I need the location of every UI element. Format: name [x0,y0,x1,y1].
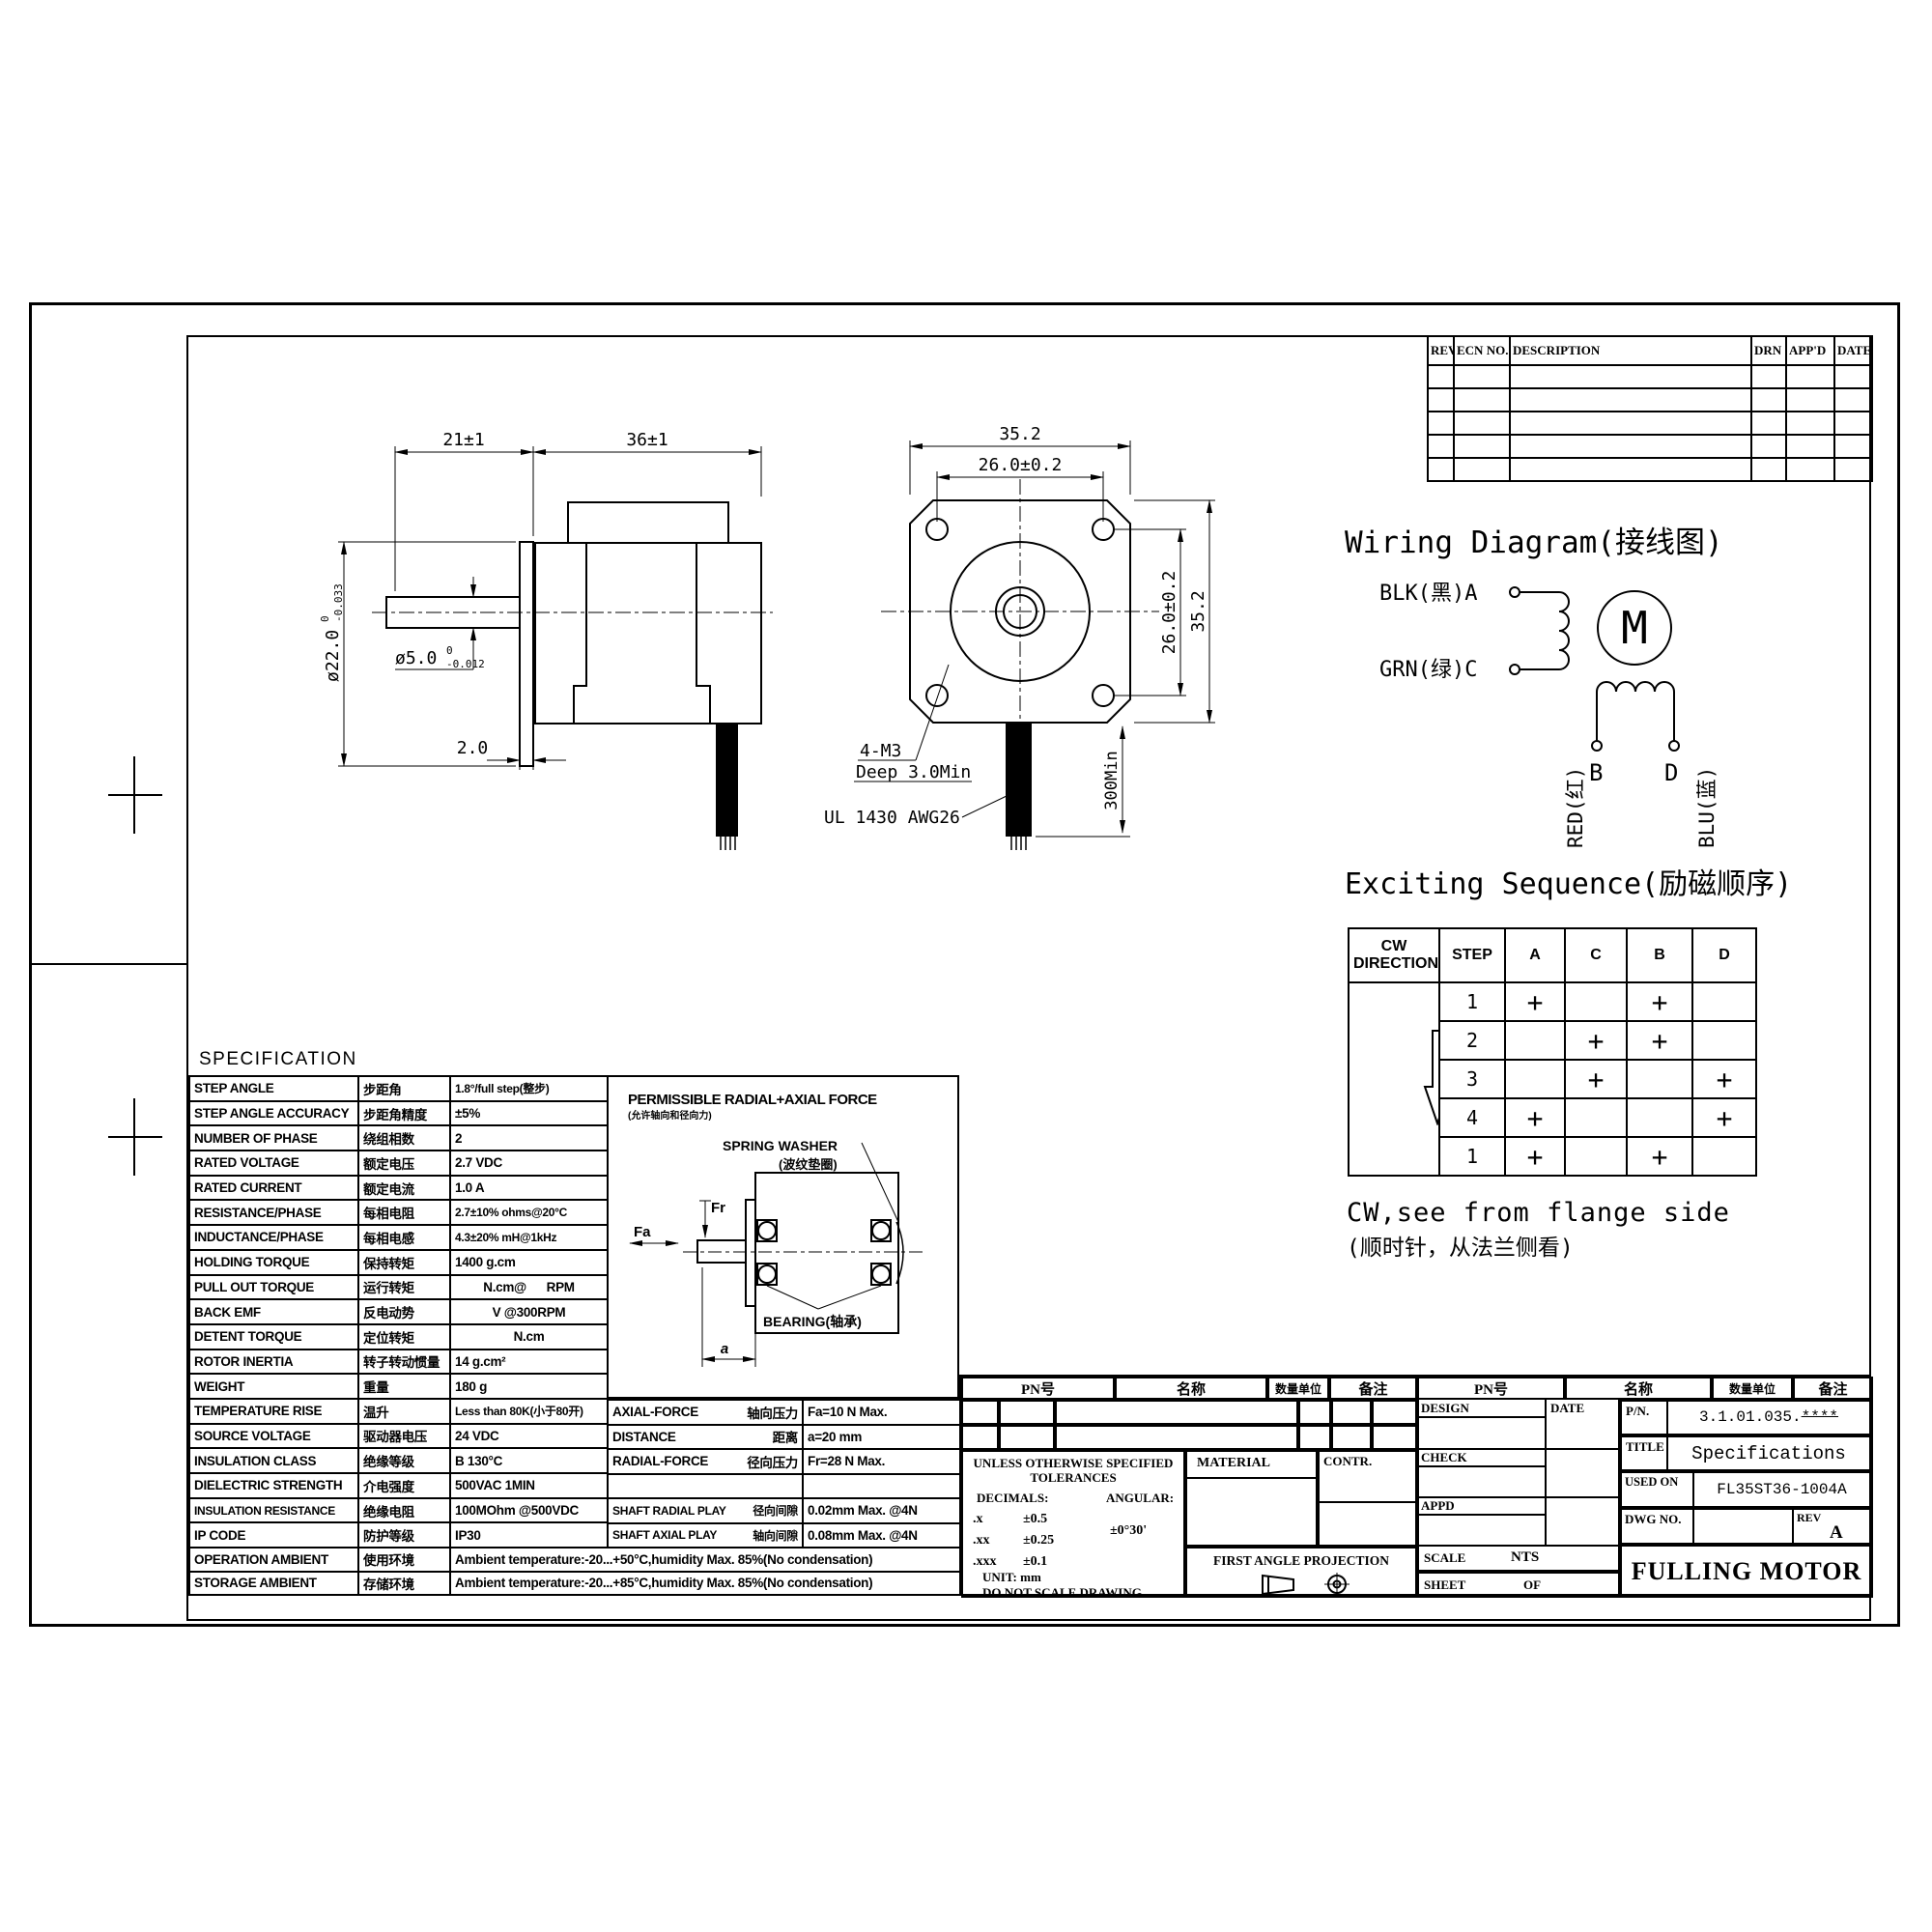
drn-header: DRN [1751,336,1786,365]
dim-shaft-tol-upper: 0 [446,644,453,657]
appd-label: APPD [1421,1498,1455,1514]
used-on-label: USED ON [1625,1475,1678,1490]
title-block: PN号 名称 数量单位 备注 PN号 名称 数量单位 备注 UNLESS OTH… [959,1375,1871,1596]
projection-label: FIRST ANGLE PROJECTION [1187,1553,1415,1569]
pn-stars: **** [1802,1408,1838,1426]
spec-row: AXIAL-FORCE轴向压力Fa=10 N Max. [608,1400,960,1425]
terminal-d-dot [1669,741,1679,751]
spec-row [608,1474,960,1499]
exciting-sequence-table: CW DIRECTION STEP A C B D 1++ 2++ 3++ 4+… [1348,927,1757,1177]
contr-box: CONTR. [1318,1450,1417,1547]
sheet-label: SHEET [1424,1577,1465,1593]
dim-boss-thickness: 2.0 [457,738,489,758]
angular-value: ±0°30' [1110,1523,1147,1539]
ecn-header: ECN NO. [1454,336,1510,365]
sequence-title: Exciting Sequence(励磁顺序) [1345,867,1792,901]
approval-area: DESIGN DATE CHECK APPD [1417,1400,1620,1545]
force-title-cn: (允许轴向和径向力) [628,1109,712,1122]
force-spec-table: AXIAL-FORCE轴向压力Fa=10 N Max. DISTANCE距离a=… [607,1399,961,1548]
coil-a-c [1520,592,1569,669]
sequence-row: 1++ [1349,982,1756,1021]
first-angle-projection-icon [1255,1572,1361,1598]
spec-row: INSULATION RESISTANCE绝缘电阻100MOhm @500VDC [189,1498,608,1523]
spec-row: NUMBER OF PHASE绕组相数2 [189,1125,608,1151]
decimals-label: DECIMALS: [977,1491,1048,1506]
design-label: DESIGN [1421,1401,1469,1416]
spec-row: STEP ANGLE步距角1.8°/full step(整步) [189,1076,608,1101]
qty-col-header: 数量单位 [1267,1377,1329,1400]
check-label: CHECK [1421,1450,1467,1465]
title-row: TITLE Specifications [1620,1435,1873,1471]
specification-title: SPECIFICATION [199,1049,357,1070]
unit-note: UNIT: mm [982,1570,1041,1585]
tolerances-line1: UNLESS OTHERWISE SPECIFIED [963,1456,1183,1471]
pn-row: P/N. 3.1.01.035.**** [1620,1400,1873,1435]
appd-header: APP'D [1786,336,1834,365]
dwg-no-row: DWG NO. REV A [1620,1508,1873,1545]
name-col-header: 名称 [1565,1377,1712,1400]
spec-row: SHAFT RADIAL PLAY径向间隙0.02mm Max. @4N [608,1498,960,1523]
side-view-dimension-texts: 21±1 36±1 ø22.0 0 -0.033 ø5.0 0 -0.012 2… [319,430,668,758]
spec-row: INDUCTANCE/PHASE每相电感4.3±20% mH@1kHz [189,1225,608,1250]
spring-washer-label: SPRING WASHER [723,1138,838,1153]
lead-a-label: BLK(黑)A [1379,582,1477,606]
spec-row: DETENT TORQUE定位转矩N.cm [189,1324,608,1350]
pn-label: P/N. [1626,1404,1649,1419]
contr-label: CONTR. [1323,1454,1372,1469]
specification-table: STEP ANGLE步距角1.8°/full step(整步) STEP ANG… [188,1075,609,1548]
projection-box: FIRST ANGLE PROJECTION [1185,1547,1417,1598]
spec-row: INSULATION CLASS绝缘等级B 130°C [189,1448,608,1473]
spring-washer-label-cn: (波纹垫圈) [779,1157,838,1172]
fa-label: Fa [634,1224,651,1240]
spec-row: RATED CURRENT额定电流1.0 A [189,1176,608,1201]
revision-empty-row [1428,365,1872,388]
lead-d-label: BLU(蓝) [1695,767,1719,848]
lead-b-label: RED(红) [1564,767,1587,848]
pn-col-header: PN号 [1417,1377,1565,1400]
bearing-label: BEARING(轴承) [763,1314,862,1329]
spec-row: SHAFT AXIAL PLAY轴向间隙0.08mm Max. @4N [608,1523,960,1548]
dim-boss-tol-lower: -0.033 [332,583,345,622]
fr-label: Fr [711,1200,725,1216]
spec-row: RESISTANCE/PHASE每相电阻2.7±10% ohms@20°C [189,1200,608,1225]
material-box: MATERIAL [1185,1450,1318,1547]
direction-header: CW DIRECTION [1349,928,1439,982]
angular-label: ANGULAR: [1106,1491,1174,1506]
spec-row: IP CODE防护等级IP30 [189,1522,608,1548]
motor-side-view [372,502,773,850]
sheet-of-label: OF [1523,1577,1541,1593]
cw-note-en: CW,see from flange side [1347,1198,1730,1228]
tol-x-value: ±0.5 [1023,1512,1047,1527]
spec-row: TEMPERATURE RISE温升Less than 80K(小于80开) [189,1399,608,1424]
spec-row: DISTANCE距离a=20 mm [608,1425,960,1450]
used-on-value: FL35ST36-1004A [1692,1481,1871,1498]
used-on-row: USED ON FL35ST36-1004A [1620,1471,1873,1508]
spec-row: BACK EMF反电动势V @300RPM [189,1299,608,1324]
spec-row: STORAGE AMBIENT存储环境Ambient temperature:-… [189,1572,960,1596]
revision-empty-row [1428,412,1872,435]
revision-empty-row [1428,388,1872,412]
title-label: TITLE [1626,1439,1664,1455]
spec-row: RADIAL-FORCE径向压力Fr=28 N Max. [608,1449,960,1474]
qty-col-header: 数量单位 [1712,1377,1793,1400]
terminal-d-label: D [1664,759,1678,786]
dim-hole-pitch-h: 26.0±0.2 [979,455,1063,475]
force-title: PERMISSIBLE RADIAL+AXIAL FORCE [628,1092,877,1108]
dim-boss-tol-upper: 0 [319,615,331,622]
terminal-b-label: B [1589,759,1603,786]
name-col-header: 名称 [1115,1377,1267,1400]
date-header: DATE [1834,336,1872,365]
tolerances-box: UNLESS OTHERWISE SPECIFIED TOLERANCES DE… [961,1450,1185,1598]
date-label: DATE [1550,1401,1584,1416]
dim-hole-pitch-v: 26.0±0.2 [1159,571,1179,655]
wiring-diagram: Wiring Diagram(接线图) BLK(黑)A GRN(绿)C M B … [1345,526,1792,901]
tolerances-line2: TOLERANCES [963,1470,1183,1486]
dim-cable-length: 300Min [1102,751,1122,810]
spec-row: STEP ANGLE ACCURACY步距角精度±5% [189,1101,608,1126]
dim-width: 35.2 [999,424,1040,444]
cw-note-cn: (顺时针，从法兰侧看) [1347,1229,1574,1262]
rev-header: REV [1428,336,1454,365]
rev-label: REV [1797,1511,1821,1525]
coil-b-d [1597,682,1674,741]
spec-row: OPERATION AMBIENT使用环境Ambient temperature… [189,1548,960,1572]
revision-header-row: REV ECN NO. DESCRIPTION DRN APP'D DATE [1428,336,1872,365]
remark-col-header: 备注 [1793,1377,1873,1400]
dim-shaft-dia: ø5.0 [395,648,437,668]
scale-label: SCALE [1424,1550,1465,1566]
specification-ambient-table: OPERATION AMBIENT使用环境Ambient temperature… [188,1547,961,1596]
side-view-dimension-lines [338,446,761,770]
note-cable: UL 1430 AWG26 [824,808,960,828]
border-fold-marks [108,756,162,1176]
pn-col-header: PN号 [961,1377,1115,1400]
a-dim-label: a [721,1341,728,1357]
scale-value: NTS [1511,1549,1539,1566]
spec-row: PULL OUT TORQUE运行转矩N.cm@ RPM [189,1275,608,1300]
dim-height: 35.2 [1188,590,1208,632]
spec-row: SOURCE VOLTAGE驱动器电压24 VDC [189,1424,608,1449]
lead-c-label: GRN(绿)C [1379,658,1477,682]
cw-direction-arrow-icon [1423,1029,1439,1125]
material-label: MATERIAL [1197,1456,1270,1471]
dwg-no-label: DWG NO. [1625,1512,1682,1527]
spec-row: WEIGHT重量180 g [189,1374,608,1399]
dim-boss-dia: ø22.0 [323,630,343,682]
spec-row: DIELECTRIC STRENGTH介电强度500VAC 1MIN [189,1473,608,1498]
note-mounting-holes-line1: 4-M3 [860,741,901,761]
revision-empty-row [1428,458,1872,481]
spec-row: ROTOR INERTIA转子转动惯量14 g.cm² [189,1350,608,1375]
remark-col-header: 备注 [1329,1377,1417,1400]
motor-symbol: M [1621,602,1648,654]
company-name: FULLING MOTOR [1632,1557,1862,1586]
sheet-row: SHEET OF [1417,1572,1620,1598]
dim-shaft-length: 21±1 [442,430,484,450]
cw-direction-arrow-cell [1349,982,1439,1176]
description-header: DESCRIPTION [1510,336,1751,365]
rev-value: A [1830,1522,1843,1544]
terminal-b-dot [1592,741,1602,751]
terminal-a-dot [1510,587,1520,597]
engineering-drawing-sheet: { "colors": {"ink": "#000000", "paper": … [0,0,1932,1932]
dim-body-length: 36±1 [626,430,668,450]
force-diagram-box: PERMISSIBLE RADIAL+AXIAL FORCE (允许轴向和径向力… [607,1075,959,1399]
wiring-title: Wiring Diagram(接线图) [1345,526,1723,560]
tol-xx-value: ±0.25 [1023,1533,1054,1548]
tol-xxx-value: ±0.1 [1023,1554,1047,1570]
dim-shaft-tol-lower: -0.012 [446,658,485,670]
note-mounting-holes-line2: Deep 3.0Min [856,762,971,782]
pn-value: 3.1.01.035.**** [1666,1408,1871,1426]
force-diagram: PERMISSIBLE RADIAL+AXIAL FORCE (允许轴向和径向力… [609,1077,957,1397]
spec-row: RATED VOLTAGE额定电压2.7 VDC [189,1151,608,1176]
scale-row: SCALE NTS [1417,1545,1620,1572]
no-scale-note: DO NOT SCALE DRAWING [982,1585,1142,1601]
terminal-c-dot [1510,665,1520,674]
sequence-header-row: CW DIRECTION STEP A C B D [1349,928,1756,982]
revision-empty-row [1428,435,1872,458]
title-value: Specifications [1666,1443,1871,1464]
revision-table: REV ECN NO. DESCRIPTION DRN APP'D DATE [1427,335,1873,482]
company-box: FULLING MOTOR [1620,1545,1873,1598]
spec-row: HOLDING TORQUE保持转矩1400 g.cm [189,1250,608,1275]
